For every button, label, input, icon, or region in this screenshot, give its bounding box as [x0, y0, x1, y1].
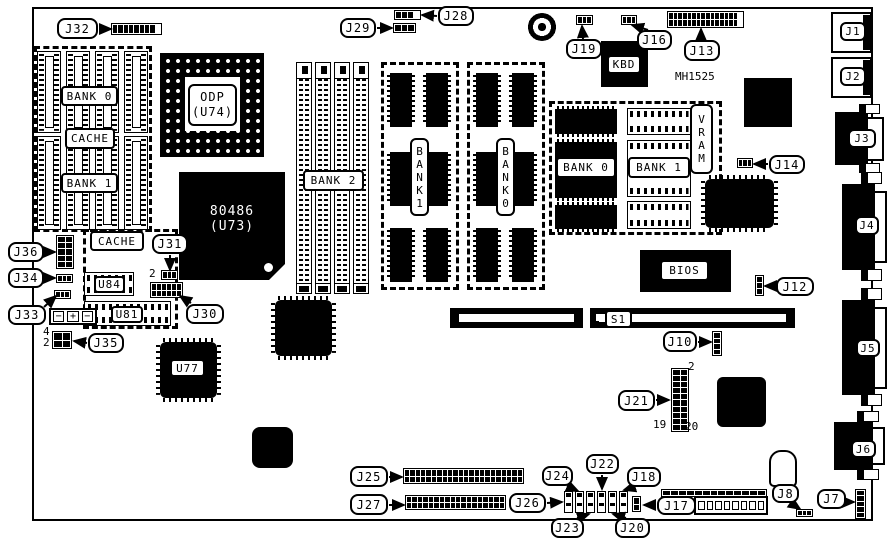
- pin: [54, 341, 62, 348]
- pin: [152, 291, 156, 297]
- pin: [448, 470, 452, 476]
- pin: [58, 262, 65, 267]
- vertical-label-char: 1: [416, 197, 423, 210]
- pin: [168, 272, 172, 278]
- pin: [496, 477, 500, 483]
- pin: [451, 497, 455, 502]
- battery-terminal: −: [53, 311, 64, 322]
- dram-chip: [387, 228, 415, 282]
- pin: [634, 505, 639, 511]
- callout-j17: J17: [657, 496, 696, 515]
- pin: [681, 376, 688, 381]
- pin: [807, 511, 811, 515]
- pin: [421, 470, 425, 476]
- callout-j30: J30: [186, 304, 224, 324]
- pin: [857, 491, 864, 495]
- component-label: BIOS: [660, 260, 709, 281]
- pin: [674, 20, 678, 26]
- pin: [707, 501, 714, 510]
- pin: [500, 497, 504, 502]
- pin: [421, 477, 425, 483]
- pin: [489, 503, 493, 508]
- pin: [61, 292, 65, 297]
- pin: [673, 407, 680, 412]
- j32-connector: [111, 23, 162, 35]
- pin: [610, 498, 615, 502]
- pin: [683, 20, 687, 26]
- pin: [469, 470, 473, 476]
- callout-j27: J27: [350, 494, 388, 515]
- pin: [134, 25, 138, 33]
- pin: [467, 497, 471, 502]
- pin: [715, 20, 719, 26]
- pin: [577, 503, 582, 507]
- pin: [742, 491, 749, 495]
- pin: [673, 425, 680, 430]
- pin: [669, 13, 673, 19]
- j8-jumper: [796, 509, 813, 517]
- plcc-chip: [252, 427, 293, 468]
- component-label: BANK 1: [628, 157, 690, 178]
- vertical-label-char: K: [416, 184, 423, 197]
- pin: [857, 496, 864, 500]
- port-mount-tab: [861, 269, 882, 281]
- pin: [140, 25, 144, 33]
- odp-socket: ODP(U74): [160, 53, 264, 157]
- pin: [485, 477, 489, 483]
- dram-chip: [387, 73, 415, 127]
- pin: [496, 470, 500, 476]
- pin: [440, 503, 444, 508]
- pin: [464, 470, 468, 476]
- pin: [418, 503, 422, 508]
- pin: [489, 497, 493, 502]
- pin: [512, 470, 516, 476]
- annotation-text: 19: [653, 419, 666, 430]
- pin: [724, 501, 731, 510]
- pin: [681, 407, 688, 412]
- pin: [402, 25, 408, 31]
- pin: [621, 493, 626, 497]
- pin: [738, 13, 742, 19]
- j35-header: [52, 331, 72, 349]
- pin: [701, 20, 705, 26]
- pin: [443, 477, 447, 483]
- pin: [402, 12, 407, 18]
- port-mount-tab: [861, 394, 882, 406]
- pin: [177, 291, 181, 297]
- callout-j25: J25: [350, 466, 388, 487]
- pin: [456, 497, 460, 502]
- pin: [472, 497, 476, 502]
- pin: [587, 17, 591, 23]
- pin: [480, 470, 484, 476]
- pin: [63, 333, 71, 340]
- cache-socket: [37, 136, 61, 230]
- pin: [715, 13, 719, 19]
- port-mount-tab: [861, 172, 882, 184]
- cpu-label-line: 80486: [179, 204, 285, 219]
- pin: [671, 491, 678, 495]
- pin: [669, 20, 673, 26]
- pin: [483, 503, 487, 508]
- pin: [172, 284, 176, 290]
- pin: [674, 13, 678, 19]
- pin: [711, 13, 715, 19]
- pin: [453, 470, 457, 476]
- pin: [410, 470, 414, 476]
- pin: [491, 477, 495, 483]
- pin: [610, 503, 615, 507]
- battery-terminal: −: [82, 311, 93, 322]
- port-label-j2: J2: [840, 67, 866, 86]
- port-mount-tab: [859, 104, 880, 114]
- pin: [738, 20, 742, 26]
- pin: [162, 284, 166, 290]
- cpu-80486: 80486(U73): [179, 172, 285, 280]
- component-label: BANK 0: [556, 157, 616, 178]
- pin: [758, 501, 765, 510]
- pin: [407, 503, 411, 508]
- pin: [711, 491, 718, 495]
- pin: [634, 498, 639, 504]
- pin: [418, 497, 422, 502]
- j27-connector: [405, 495, 506, 510]
- pin: [118, 25, 122, 33]
- pin: [734, 20, 738, 26]
- pin: [577, 498, 582, 502]
- pin: [732, 501, 739, 510]
- bank0-vertical: BANK0: [496, 138, 515, 216]
- bank1-vertical: BANK1: [410, 138, 429, 216]
- pin: [408, 12, 413, 18]
- pin: [478, 503, 482, 508]
- dram-chip: [423, 73, 451, 127]
- odp-label-line: (U74): [192, 105, 233, 120]
- pin: [681, 382, 688, 387]
- pin: [803, 511, 807, 515]
- pin: [687, 491, 694, 495]
- callout-j34: J34: [8, 268, 44, 288]
- pin: [451, 503, 455, 508]
- callout-j26: J26: [509, 493, 546, 513]
- j8-component-outline: [769, 450, 797, 487]
- pin: [673, 394, 680, 399]
- pin: [757, 289, 762, 294]
- pin: [673, 413, 680, 418]
- j16-jumper: [621, 15, 637, 25]
- component-label: BANK 0: [61, 86, 118, 106]
- pin: [145, 25, 149, 33]
- j26-jumper: [586, 491, 595, 513]
- pin: [461, 503, 465, 508]
- pin: [512, 477, 516, 483]
- pin: [396, 12, 401, 18]
- pin: [588, 498, 593, 502]
- pin: [588, 507, 593, 511]
- pin: [566, 493, 571, 497]
- battery: −+−: [49, 308, 97, 325]
- vertical-label-char: B: [502, 145, 509, 158]
- annotation-text: 2: [149, 268, 156, 279]
- pin: [440, 497, 444, 502]
- pin: [720, 20, 724, 26]
- pin: [566, 507, 571, 511]
- pin: [163, 272, 167, 278]
- square-chip: [744, 78, 792, 127]
- pin: [405, 470, 409, 476]
- pin: [58, 256, 65, 261]
- vertical-label-char: A: [502, 158, 509, 171]
- j30-header: [150, 282, 183, 298]
- pin: [678, 13, 682, 19]
- pin: [798, 511, 802, 515]
- plcc-chip: [717, 377, 766, 427]
- pin: [621, 503, 626, 507]
- port-mount-tab: [861, 288, 882, 300]
- port-label-j6: J6: [851, 440, 876, 458]
- callout-j8: J8: [772, 484, 799, 503]
- pin: [429, 503, 433, 508]
- j13-connector: [667, 11, 744, 28]
- pin: [162, 291, 166, 297]
- callout-j31: J31: [152, 234, 188, 254]
- pin: [749, 501, 756, 510]
- pin: [63, 341, 71, 348]
- port-label-j1: J1: [840, 22, 866, 41]
- pin: [63, 276, 67, 281]
- pin: [459, 470, 463, 476]
- j12-jumper: [755, 275, 764, 296]
- pin: [599, 507, 604, 511]
- pin: [448, 477, 452, 483]
- vram-socket: [627, 201, 691, 229]
- pin: [695, 491, 702, 495]
- pin: [157, 284, 161, 290]
- pin: [621, 498, 626, 502]
- vram-socket: [627, 108, 691, 135]
- j17-jumper: [632, 496, 641, 512]
- pin: [588, 503, 593, 507]
- pin: [156, 25, 160, 33]
- pin: [714, 333, 720, 338]
- chipset-qfp: [271, 296, 336, 360]
- component-label: BANK 2: [303, 170, 364, 191]
- j36-header: [56, 235, 74, 269]
- pin: [167, 291, 171, 297]
- pin: [491, 470, 495, 476]
- pin: [437, 477, 441, 483]
- pin: [678, 20, 682, 26]
- pin: [734, 13, 738, 19]
- port-label-j5: J5: [856, 339, 880, 357]
- pin: [483, 497, 487, 502]
- pin: [714, 344, 720, 349]
- pin: [416, 477, 420, 483]
- annotation-text: 2: [688, 361, 695, 372]
- pin: [599, 498, 604, 502]
- callout-j36: J36: [8, 242, 44, 262]
- pin: [469, 477, 473, 483]
- mounting-hole: [527, 13, 557, 41]
- pin: [599, 503, 604, 507]
- pin: [714, 350, 720, 355]
- component-label: U84: [94, 276, 125, 293]
- pin: [467, 503, 471, 508]
- callout-j21: J21: [618, 390, 655, 411]
- pin: [757, 277, 762, 282]
- pin: [726, 491, 733, 495]
- pin: [65, 292, 69, 297]
- pin: [445, 497, 449, 502]
- pin: [673, 370, 680, 375]
- pin: [681, 394, 688, 399]
- pin: [706, 13, 710, 19]
- pin: [683, 13, 687, 19]
- component-label: U81: [111, 306, 143, 323]
- pin: [478, 497, 482, 502]
- pin: [461, 497, 465, 502]
- vertical-label-char: 0: [502, 197, 509, 210]
- pin: [453, 477, 457, 483]
- pin: [66, 256, 73, 261]
- j24-jumper: [564, 491, 573, 513]
- pin: [445, 503, 449, 508]
- callout-j32: J32: [57, 18, 98, 39]
- dram-chip: [509, 228, 537, 282]
- vertical-label-char: K: [502, 184, 509, 197]
- pin: [743, 160, 746, 166]
- callout-j19: J19: [566, 39, 602, 59]
- pin: [673, 382, 680, 387]
- pin: [623, 17, 626, 23]
- vertical-label-char: N: [502, 171, 509, 184]
- callout-j24: J24: [542, 466, 573, 486]
- j33-jumper: [54, 290, 71, 299]
- pin: [58, 243, 65, 248]
- j22-jumper: [597, 491, 606, 513]
- vertical-label-char: A: [416, 158, 423, 171]
- vram-chip: [555, 106, 617, 137]
- pin: [426, 477, 430, 483]
- callout-j7: J7: [817, 489, 846, 509]
- callout-j29: J29: [340, 18, 376, 38]
- port-mount-tab: [857, 411, 879, 422]
- pin: [673, 419, 680, 424]
- pin: [518, 470, 522, 476]
- annotation-text: 20: [685, 421, 698, 432]
- pin: [599, 493, 604, 497]
- isa-slot-segment: [450, 308, 583, 328]
- pin: [443, 470, 447, 476]
- callout-j12: J12: [776, 277, 814, 296]
- pin: [507, 477, 511, 483]
- vertical-label-char: M: [698, 152, 705, 165]
- pin: [426, 470, 430, 476]
- callout-j18: J18: [627, 467, 661, 487]
- pin: [434, 497, 438, 502]
- pin: [172, 272, 176, 278]
- pin: [129, 25, 133, 33]
- motherboard-diagram: BANK 0CACHEBANK 1CACHEU84U81BANK 2KBDBAN…: [0, 0, 892, 549]
- pin: [688, 20, 692, 26]
- pin: [432, 477, 436, 483]
- pin: [58, 276, 62, 281]
- pin: [578, 17, 582, 23]
- pin: [494, 497, 498, 502]
- j18-jumper: [619, 491, 628, 513]
- component-label: U77: [170, 359, 205, 377]
- pin: [698, 501, 705, 510]
- pin: [725, 20, 729, 26]
- video-controller-chip: [701, 175, 778, 232]
- pin: [432, 470, 436, 476]
- pin: [507, 470, 511, 476]
- callout-j13: J13: [684, 40, 720, 61]
- pin: [423, 503, 427, 508]
- callout-j14: J14: [769, 155, 805, 174]
- pin: [66, 243, 73, 248]
- pin: [673, 376, 680, 381]
- pin: [412, 503, 416, 508]
- callout-j10: J10: [663, 331, 697, 352]
- pin: [748, 160, 751, 166]
- annotation-text: MH1525: [675, 71, 715, 82]
- dram-chip: [509, 73, 537, 127]
- pin: [703, 491, 710, 495]
- component-label: BANK 1: [61, 173, 118, 193]
- j23-jumper: [575, 491, 584, 513]
- pin: [518, 477, 522, 483]
- port-label-j4: J4: [855, 216, 879, 235]
- pin: [502, 470, 506, 476]
- callout-j28: J28: [438, 6, 474, 26]
- j31-jumper: [161, 270, 178, 280]
- odp-label-line: ODP: [200, 90, 225, 105]
- pin: [701, 13, 705, 19]
- pin: [757, 283, 762, 288]
- callout-j22: J22: [586, 454, 619, 474]
- vertical-label-char: V: [698, 113, 705, 126]
- pin: [706, 20, 710, 26]
- pin: [437, 470, 441, 476]
- j28-jumper: [394, 10, 421, 20]
- pin: [857, 507, 864, 511]
- pin: [697, 13, 701, 19]
- pin: [464, 477, 468, 483]
- pin: [66, 237, 73, 242]
- port-mount-tab: [857, 469, 879, 480]
- pin: [681, 370, 688, 375]
- odp-label: ODP(U74): [188, 84, 237, 126]
- j29-jumper: [393, 23, 416, 33]
- pin: [429, 497, 433, 502]
- pin: [673, 400, 680, 405]
- pin: [152, 284, 156, 290]
- j19-jumper: [576, 15, 593, 25]
- pin: [758, 491, 765, 495]
- pin: [58, 249, 65, 254]
- j10-jumper: [712, 331, 722, 356]
- pin: [681, 388, 688, 393]
- pin: [681, 413, 688, 418]
- pin: [711, 20, 715, 26]
- pin: [167, 284, 171, 290]
- dram-chip: [473, 228, 501, 282]
- pin: [395, 25, 401, 31]
- pin: [124, 25, 128, 33]
- pin: [566, 503, 571, 507]
